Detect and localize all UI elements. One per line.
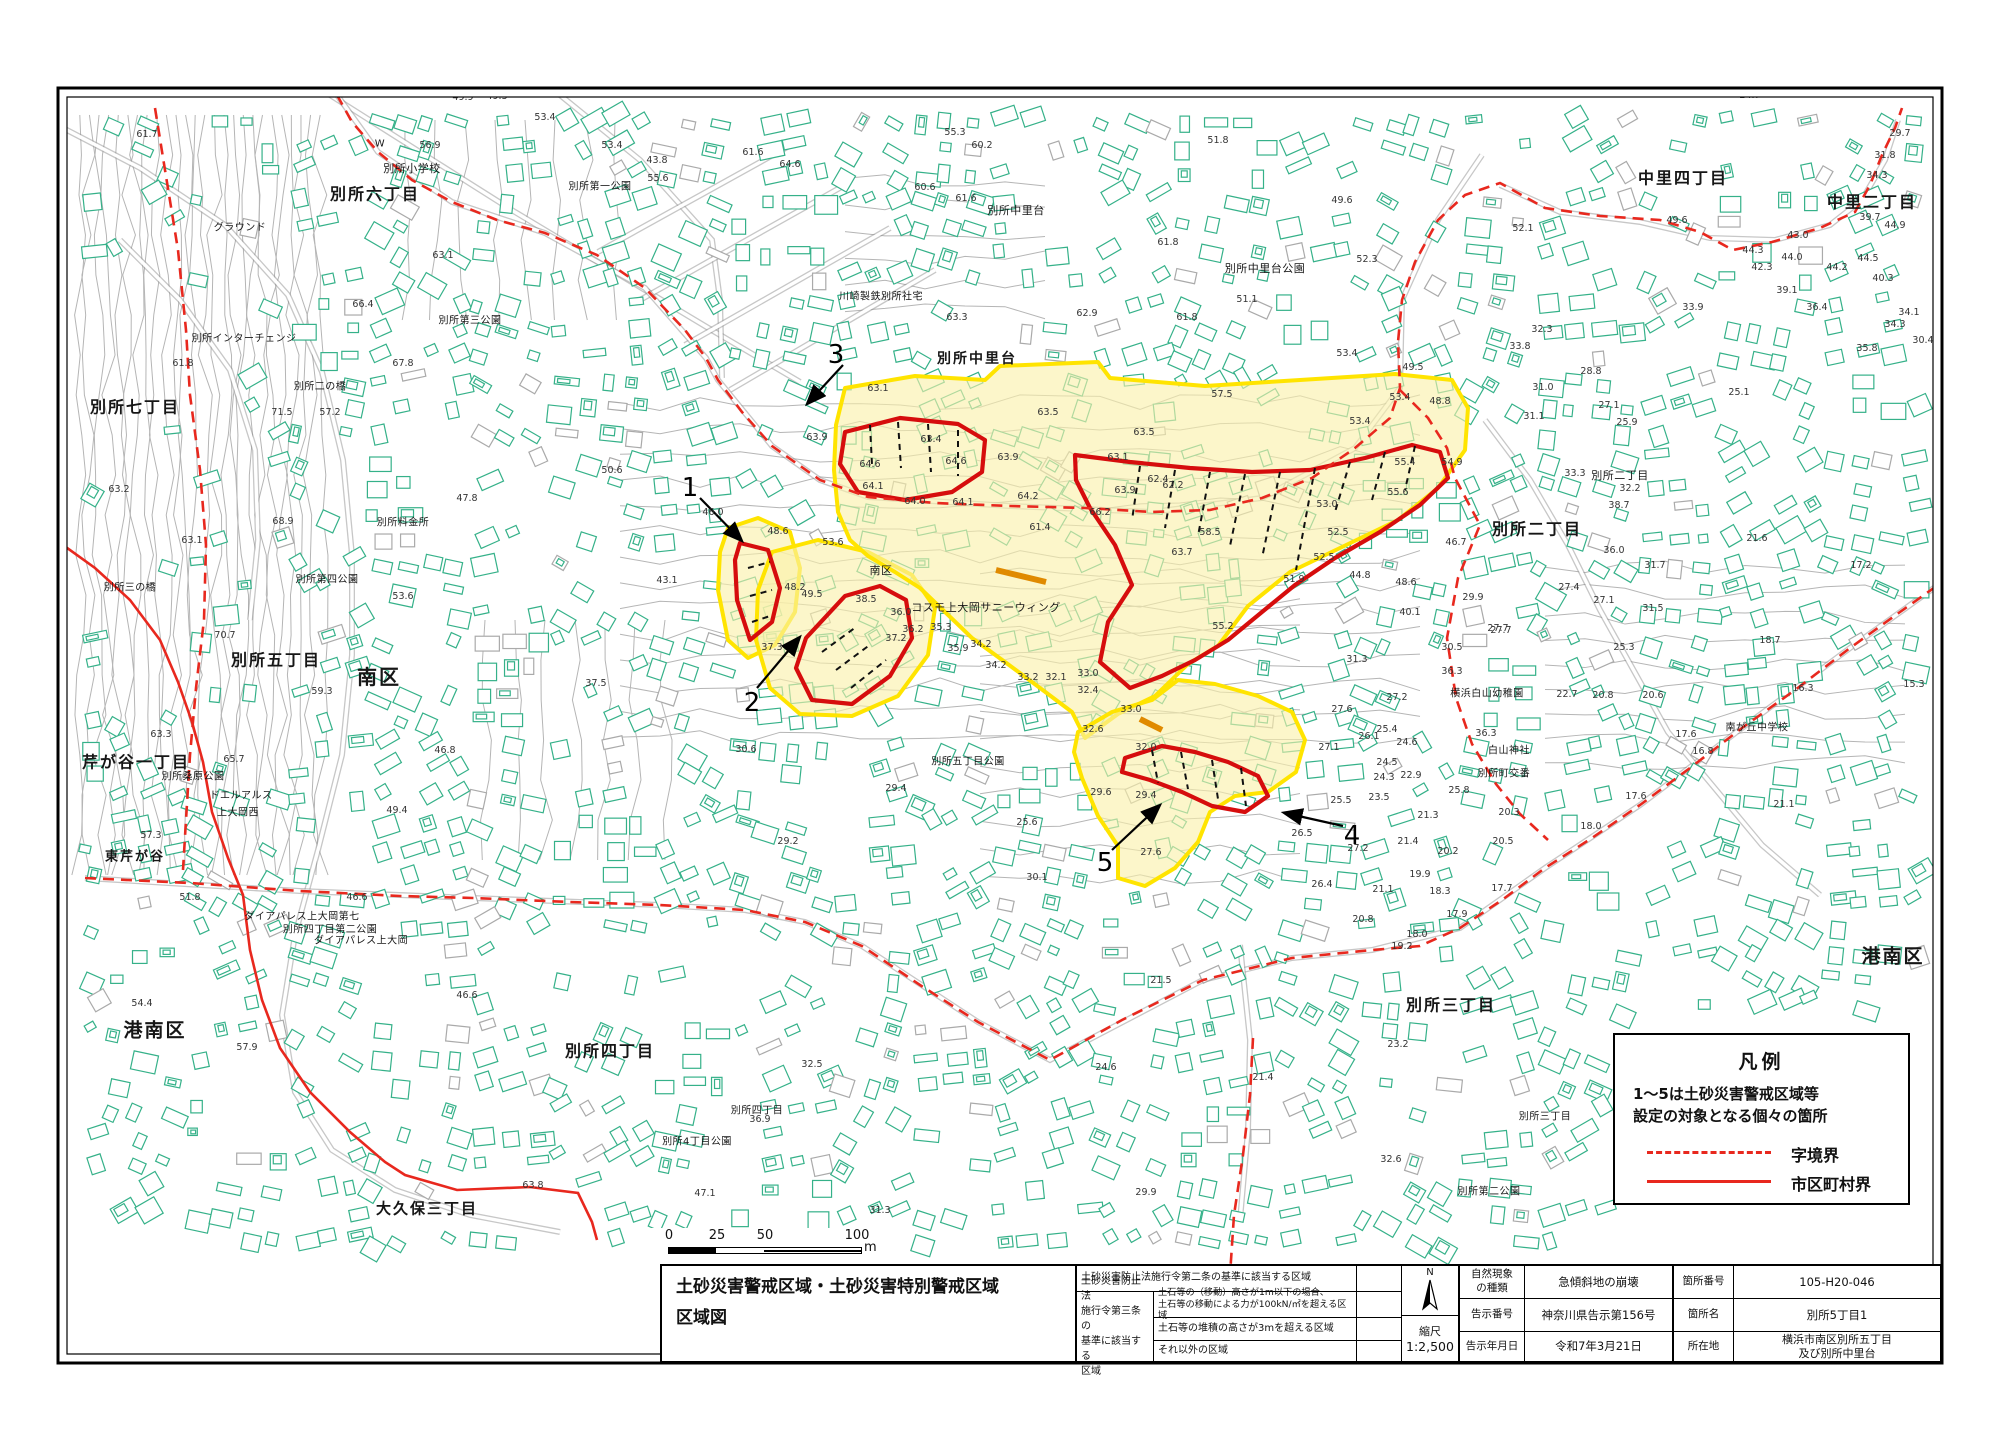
zone-row-other: それ以外の区域 (1154, 1341, 1357, 1361)
spot-height: 44.3 (1742, 245, 1763, 256)
spot-height: 30.1 (1026, 872, 1047, 883)
spot-height: 29.6 (1090, 787, 1111, 798)
spot-height: 38.5 (855, 594, 876, 605)
place-label: 別所七丁目 (90, 398, 180, 417)
spot-height: 32.1 (1045, 672, 1066, 683)
spot-height: 32.2 (1619, 483, 1640, 494)
field-siteno-label: 箇所番号 (1674, 1266, 1734, 1299)
place-label: ダイアパレス上大岡 (314, 934, 408, 947)
spot-height: 35.9 (947, 643, 968, 654)
spot-height: 63.7 (1171, 547, 1192, 558)
spot-height: 55.6 (647, 173, 668, 184)
spot-height: 37.2 (885, 633, 906, 644)
spot-height: 33.2 (1017, 672, 1038, 683)
spot-height: 61.6 (955, 193, 976, 204)
spot-height: 23.2 (1387, 1039, 1408, 1050)
spot-height: 53.4 (1336, 348, 1357, 359)
spot-height: 24.6 (1396, 737, 1417, 748)
svg-text:5: 5 (1097, 848, 1114, 878)
spot-height: 44.0 (1781, 252, 1802, 263)
spot-height: 34.3 (1866, 170, 1887, 181)
spot-height: 32.6 (1082, 724, 1103, 735)
place-label: 別所インターチェンジ (192, 333, 297, 345)
spot-height: 48.6 (1395, 577, 1416, 588)
spot-height: 60.6 (914, 182, 935, 193)
field-location-label: 所在地 (1674, 1332, 1734, 1361)
place-label: 別所第二公園 (1458, 1185, 1521, 1198)
spot-height: 32.4 (1077, 685, 1098, 696)
spot-height: 64.6 (859, 459, 880, 470)
spot-height: 61.6 (742, 147, 763, 158)
legend-title: 凡例 (1615, 1047, 1908, 1074)
svg-text:1: 1 (682, 473, 699, 503)
place-label: 川崎製鉄別所社宅 (839, 290, 923, 303)
spot-height: 56.9 (419, 140, 440, 151)
scale-bar-segment (668, 1247, 716, 1254)
spot-height: 59.3 (311, 686, 332, 697)
spot-height: 44.2 (1826, 262, 1847, 273)
spot-height: 17.6 (1625, 791, 1646, 802)
spot-height: 30.6 (735, 744, 756, 755)
spot-height: 63.1 (181, 535, 202, 546)
spot-height: 34.2 (970, 639, 991, 650)
spot-height: 67.8 (392, 358, 413, 369)
place-label: 南区 (870, 564, 893, 577)
spot-height: 35.8 (1856, 343, 1877, 354)
spot-height: 53.0 (1316, 499, 1337, 510)
scale-bar-segment (764, 1250, 862, 1252)
spot-height: 64.6 (779, 159, 800, 170)
scale-label: 縮尺 (1419, 1323, 1441, 1339)
spot-height: 63.8 (522, 1180, 543, 1191)
north-cell: N (1402, 1266, 1460, 1316)
spot-height: 61.8 (172, 358, 193, 369)
spot-height: 17.9 (1446, 909, 1467, 920)
spot-height: 21.4 (1252, 1072, 1273, 1083)
spot-height: 34.2 (985, 660, 1006, 671)
spot-height: 29.4 (885, 783, 906, 794)
place-label: 別所中里台 (936, 350, 1017, 367)
spot-height: 48.6 (767, 526, 788, 537)
spot-height: 61.8 (1176, 312, 1197, 323)
zone-group-label: 土砂災害防止法 施行令第三条の 基準に該当する 区域 (1077, 1292, 1154, 1361)
spot-height: 27.2 (1347, 843, 1368, 854)
spot-height: 63.1 (1107, 452, 1128, 463)
symbol-cell (1357, 1266, 1402, 1292)
spot-height: 36.0 (890, 607, 911, 618)
spot-height: 63.9 (1114, 485, 1135, 496)
spot-height: 51.8 (1207, 135, 1228, 146)
spot-height: 71.5 (271, 407, 292, 418)
place-label: 別所桑原公園 (162, 771, 225, 783)
spot-height: 20.2 (1437, 846, 1458, 857)
spot-height: 57.3 (140, 830, 161, 841)
spot-height: 43.0 (1787, 230, 1808, 241)
spot-height: 53.4 (1389, 392, 1410, 403)
spot-height: 52.5 (1313, 552, 1334, 563)
spot-height: 18.7 (1759, 635, 1780, 646)
spot-height: 21.3 (1417, 810, 1438, 821)
spot-height: 20.8 (1352, 914, 1373, 925)
spot-height: 63.5 (1133, 427, 1154, 438)
spot-height: 47.8 (456, 493, 477, 504)
spot-height: 20.3 (1498, 807, 1519, 818)
spot-height: 36.4 (1806, 302, 1827, 313)
spot-height: 55.4 (1394, 457, 1415, 468)
spot-height: 46.8 (434, 745, 455, 756)
spot-height: 33.9 (1682, 302, 1703, 313)
spot-height: 20.6 (1642, 690, 1663, 701)
field-sitename-label: 箇所名 (1674, 1299, 1734, 1332)
spot-height: 55.3 (944, 127, 965, 138)
spot-height: 23.5 (1368, 792, 1389, 803)
spot-height: 35.3 (930, 622, 951, 633)
spot-height: 18.3 (1429, 886, 1450, 897)
spot-height: 63.9 (997, 452, 1018, 463)
spot-height: 20.5 (1492, 836, 1513, 847)
place-label: 別所小学校 (383, 161, 441, 175)
place-label: 横浜白山幼稚園 (1450, 687, 1524, 700)
place-label: 芹が谷一丁目 (82, 753, 190, 772)
spot-height: 27.2 (1386, 692, 1407, 703)
place-label: コスモ上大岡サニーウィング (911, 600, 1061, 614)
spot-height: 31.1 (1523, 411, 1544, 422)
field-date-label: 告示年月日 (1460, 1332, 1525, 1361)
field-date-value: 令和7年3月21日 (1525, 1332, 1674, 1361)
spot-height: 26.1 (1358, 731, 1379, 742)
spot-height: 46.6 (456, 990, 477, 1001)
spot-height: 70.7 (214, 630, 235, 641)
place-label: 白山神社 (1488, 744, 1530, 757)
spot-height: 54.9 (1441, 457, 1462, 468)
spot-height: 31.3 (869, 1205, 890, 1216)
place-label: 中里二丁目 (1827, 193, 1917, 212)
spot-height: 33.0 (1077, 668, 1098, 679)
place-label: グラウンド (214, 221, 267, 234)
legend-desc-line1: 1～5は土砂災害警戒区域等 (1633, 1085, 1903, 1103)
spot-height: 52.1 (1512, 223, 1533, 234)
spot-height: 31.3 (1346, 654, 1367, 665)
place-label: 別所4丁目公園 (662, 1136, 732, 1148)
place-label: 東芹が谷 (105, 849, 165, 865)
spot-height: 38.7 (1608, 500, 1629, 511)
place-label: 別所料金所 (377, 516, 430, 529)
scale-tick-50: 50 (757, 1228, 774, 1243)
spot-height: 37.3 (761, 642, 782, 653)
place-label: 別所第一公園 (569, 180, 632, 193)
field-notice-value: 神奈川県告示第156号 (1525, 1299, 1674, 1332)
spot-height: 31.0 (1532, 382, 1553, 393)
spot-height: 40.3 (1872, 273, 1893, 284)
spot-height: 32.0 (1135, 742, 1156, 753)
spot-height: 53.4 (601, 140, 622, 151)
boundary-solid-label: 市区町村界 (1791, 1171, 1871, 1195)
spot-height: 52.5 (1327, 527, 1348, 538)
spot-height: 25.6 (1016, 817, 1037, 828)
spot-height: 42.3 (1751, 262, 1772, 273)
spot-height: 44.9 (1884, 220, 1905, 231)
spot-height: 24.5 (1376, 757, 1397, 768)
spot-height: 25.5 (1330, 795, 1351, 806)
spot-height: 58.5 (1199, 527, 1220, 538)
place-label: 別所第三公園 (439, 314, 502, 327)
spot-height: 29.9 (1462, 592, 1483, 603)
spot-height: 21.1 (1372, 884, 1393, 895)
spot-height: 54.4 (131, 998, 152, 1009)
spot-height: 39.1 (1776, 285, 1797, 296)
place-label: 別所中里台 (987, 203, 1045, 217)
spot-height: 61.8 (1157, 237, 1178, 248)
spot-height: 40.1 (1399, 607, 1420, 618)
spot-height: 63.9 (806, 432, 827, 443)
spot-height: 63.5 (1037, 407, 1058, 418)
place-label: 別所町交番 (1478, 767, 1531, 780)
zone-row-deposit: 土石等の堆積の高さが3mを超える区域 (1154, 1318, 1357, 1341)
spot-height: 31.5 (1642, 603, 1663, 614)
spot-height: 25.3 (1613, 642, 1634, 653)
spot-height: 21.4 (1397, 836, 1418, 847)
spot-height: 16.8 (1692, 746, 1713, 757)
field-nature-value: 急傾斜地の崩壊 (1525, 1266, 1674, 1299)
spot-height: 33.8 (1509, 341, 1530, 352)
spot-height: 64.0 (904, 496, 925, 507)
scale-value: 1:2,500 (1406, 1339, 1454, 1354)
spot-height: 33.0 (1120, 704, 1141, 715)
legend-box: 凡例 1～5は土砂災害警戒区域等 設定の対象となる個々の箇所 字境界 市区町村界 (1613, 1033, 1910, 1205)
spot-height: 61.4 (1029, 522, 1050, 533)
spot-height: 17.6 (1675, 729, 1696, 740)
svg-text:2: 2 (744, 688, 761, 718)
spot-height: 29.4 (1135, 790, 1156, 801)
spot-height: 15.3 (1903, 679, 1924, 690)
spot-height: 25.4 (1376, 724, 1397, 735)
spot-height: 20.8 (1592, 690, 1613, 701)
spot-height: 21.5 (1150, 975, 1171, 986)
spot-height: 44.5 (1857, 253, 1878, 264)
spot-height: 33.3 (1564, 468, 1585, 479)
spot-height: 22.9 (1400, 770, 1421, 781)
spot-height: 16.3 (1792, 683, 1813, 694)
spot-height: 53.6 (822, 537, 843, 548)
spot-height: 49.6 (1666, 215, 1687, 226)
spot-height: 19.9 (1409, 869, 1430, 880)
spot-height: 63.3 (946, 312, 967, 323)
place-label: 別所四丁目 (731, 1105, 784, 1117)
field-nature-label: 自然現象 の種類 (1460, 1266, 1525, 1299)
spot-height: 64.1 (952, 497, 973, 508)
spot-height: 63.2 (108, 484, 129, 495)
scale-cell: 縮尺 1:2,500 (1402, 1316, 1460, 1361)
spot-height: 29.7 (1889, 128, 1910, 139)
spot-height: 61.7 (136, 129, 157, 140)
place-label: 別所四丁目 (565, 1042, 655, 1061)
spot-height: 36.3 (1475, 728, 1496, 739)
spot-height: 29.2 (777, 836, 798, 847)
spot-height: 32.5 (801, 1059, 822, 1070)
spot-height: 24.6 (1095, 1062, 1116, 1073)
field-notice-label: 告示番号 (1460, 1299, 1525, 1332)
place-label: 別所中里台公園 (1225, 261, 1306, 275)
spot-height: 18.0 (1406, 929, 1427, 940)
place-label: 中里四丁目 (1638, 169, 1728, 188)
spot-height: 27.4 (1558, 582, 1579, 593)
spot-height: 63.1 (867, 383, 888, 394)
info-table: 土砂災害警戒区域・土砂災害特別警戒区域 区域図 土砂災害防止法施行令第二条の基準… (660, 1264, 1942, 1363)
place-label: 別所五丁目 (231, 651, 321, 670)
spot-height: 31.8 (1874, 150, 1895, 161)
spot-height: 53.6 (392, 591, 413, 602)
spot-height: 51.1 (1236, 294, 1257, 305)
spot-height: 64.2 (1017, 491, 1038, 502)
place-label: 別所二丁目 (1492, 520, 1582, 539)
spot-height: 49.4 (386, 805, 407, 816)
spot-height: 62.2 (1162, 480, 1183, 491)
spot-height: 36.3 (1441, 666, 1462, 677)
place-label: 大久保三丁目 (376, 1199, 478, 1217)
spot-height: 26.4 (1311, 879, 1332, 890)
spot-height: 52.3 (1356, 254, 1377, 265)
spot-height: 27.1 (1318, 742, 1339, 753)
north-arrow-icon (1419, 1278, 1441, 1312)
spot-height: 66.4 (352, 299, 373, 310)
spot-height: 25.1 (1728, 387, 1749, 398)
spot-height: 17.2 (1850, 560, 1871, 571)
spot-height: 27.6 (1140, 847, 1161, 858)
field-siteno-value: 105-H20-046 (1734, 1266, 1940, 1299)
spot-height: 32.3 (1531, 324, 1552, 335)
spot-height: 27.7 (1490, 625, 1511, 636)
field-sitename-value: 別所5丁目1 (1734, 1299, 1940, 1332)
scale-unit: m (864, 1240, 877, 1255)
spot-height: 49.6 (1331, 195, 1352, 206)
spot-height: 55.2 (1212, 621, 1233, 632)
place-label: 別所三丁目 (1519, 1111, 1572, 1123)
symbol-cell (1357, 1341, 1402, 1361)
spot-height: 27.1 (1593, 595, 1614, 606)
spot-height: 36.0 (1603, 545, 1624, 556)
spot-height: 37.5 (585, 678, 606, 689)
spot-height: 24.3 (1373, 772, 1394, 783)
spot-height: 57.2 (319, 407, 340, 418)
place-label: ダイアパレス上大岡第七 (244, 910, 359, 923)
place-label: 港南区 (123, 1020, 186, 1042)
scale-tick-25: 25 (709, 1228, 726, 1243)
spot-height: 63.3 (150, 729, 171, 740)
spot-height: 60.2 (971, 140, 992, 151)
map-sheet-title: 土砂災害警戒区域・土砂災害特別警戒区域 区域図 (662, 1266, 1077, 1361)
spot-height: 44.8 (1349, 570, 1370, 581)
svg-text:3: 3 (828, 340, 845, 370)
spot-height: 57.5 (1211, 389, 1232, 400)
spot-height: 32.6 (1380, 1154, 1401, 1165)
spot-height: 43.1 (656, 575, 677, 586)
spot-height: 25.8 (1448, 785, 1469, 796)
spot-height: 29.9 (1135, 1187, 1156, 1198)
place-label: 別所六丁目 (330, 185, 420, 204)
place-label: W (375, 139, 385, 150)
spot-height: 49.5 (801, 589, 822, 600)
place-label: 南が丘中学校 (1726, 721, 1789, 734)
spot-height: 51.9 (1283, 574, 1304, 585)
spot-height: 43.8 (646, 155, 667, 166)
spot-height: 50.6 (601, 465, 622, 476)
place-label: 別所四丁目第二公園 (283, 923, 378, 936)
spot-height: 64.6 (945, 456, 966, 467)
symbol-cell (1357, 1318, 1402, 1341)
spot-height: 62.9 (1076, 308, 1097, 319)
place-label: 別所二の橋 (294, 380, 347, 393)
spot-height: 51.8 (179, 892, 200, 903)
spot-height: 49.5 (1402, 362, 1423, 373)
spot-height: 46.6 (346, 892, 367, 903)
field-location-value: 横浜市南区別所五丁目 及び別所中里台 (1734, 1332, 1940, 1361)
place-label: 別所五丁目公園 (931, 756, 1005, 768)
spot-height: 25.9 (1616, 417, 1637, 428)
spot-height: 63.1 (432, 250, 453, 261)
spot-height: 46.0 (702, 507, 723, 518)
spot-height: 53.4 (1349, 416, 1370, 427)
symbol-cell (1357, 1292, 1402, 1318)
spot-height: 57.9 (236, 1042, 257, 1053)
place-label: ドエルアルス (210, 791, 273, 802)
spot-height: 27.1 (1598, 400, 1619, 411)
scale-tick-0: 0 (665, 1228, 673, 1243)
spot-height: 34.1 (1898, 307, 1919, 318)
legend-desc-line2: 設定の対象となる個々の箇所 (1633, 1107, 1903, 1125)
place-label: 上大岡西 (217, 806, 259, 819)
spot-height: 66.2 (1089, 507, 1110, 518)
spot-height: 22.7 (1556, 689, 1577, 700)
spot-height: 65.7 (223, 754, 244, 765)
spot-height: 68.9 (272, 516, 293, 527)
spot-height: 21.6 (1746, 533, 1767, 544)
place-label: 港南区 (1861, 946, 1924, 968)
zone-row-move: 土石等の（移動）高さが1m以下の場合、 土石等の移動による力が100kN/㎡を超… (1154, 1292, 1357, 1318)
spot-height: 18.0 (1580, 821, 1601, 832)
boundary-dashed-sample (1647, 1151, 1771, 1154)
spot-height: 26.5 (1291, 828, 1312, 839)
spot-height: 30.5 (1441, 642, 1462, 653)
boundary-dashed-label: 字境界 (1791, 1142, 1839, 1166)
spot-height: 63.4 (920, 434, 941, 445)
spot-height: 47.1 (694, 1188, 715, 1199)
spot-height: 53.4 (534, 112, 555, 123)
spot-height: 28.8 (1580, 366, 1601, 377)
spot-height: 46.7 (1445, 537, 1466, 548)
place-label: 南区 (357, 665, 401, 689)
spot-height: 55.6 (1387, 487, 1408, 498)
spot-height: 48.8 (1429, 396, 1450, 407)
north-label: N (1419, 1267, 1441, 1278)
place-label: 別所第四公園 (296, 573, 359, 586)
spot-height: 17.7 (1491, 883, 1512, 894)
spot-height: 64.1 (862, 481, 883, 492)
spot-height: 19.2 (1391, 941, 1412, 952)
place-label: 別所二丁目 (1591, 469, 1649, 482)
scale-bar: 0 25 50 100 m (648, 1228, 888, 1262)
place-label: 別所三の橋 (104, 581, 157, 594)
spot-height: 39.7 (1859, 212, 1880, 223)
spot-height: 21.1 (1773, 799, 1794, 810)
place-label: 別所三丁目 (1406, 996, 1496, 1015)
spot-height: 31.7 (1644, 560, 1665, 571)
spot-height: 34.3 (1884, 319, 1905, 330)
boundary-solid-sample (1647, 1180, 1771, 1183)
spot-height: 27.6 (1331, 704, 1352, 715)
spot-height: 30.4 (1912, 335, 1933, 346)
